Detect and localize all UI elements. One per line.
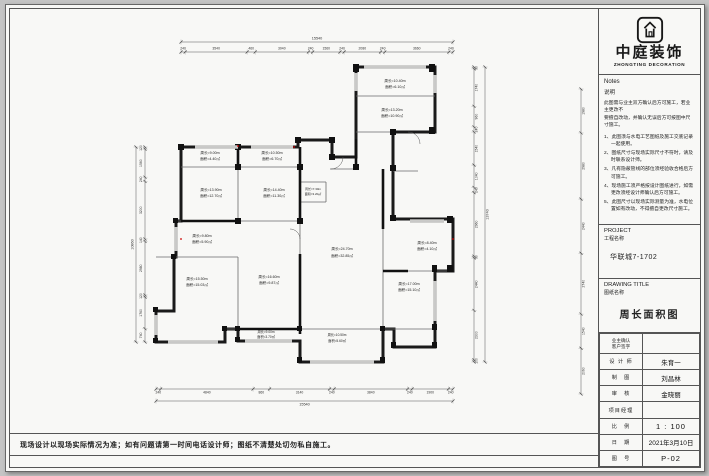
date-value: 2021年3月10日 (643, 434, 700, 450)
svg-text:3040: 3040 (278, 46, 286, 50)
drawing-sheet: 2403540460304024015602402080240366024015… (5, 4, 705, 472)
svg-text:2060: 2060 (581, 367, 585, 375)
svg-text:1560: 1560 (323, 46, 331, 50)
table-row: 项目经理 (600, 402, 700, 418)
svg-text:1900: 1900 (426, 391, 434, 395)
svg-text:3840: 3840 (367, 391, 375, 395)
project-section: PROJECT 工程名称 华联城7-1702 (599, 225, 700, 279)
svg-text:2960: 2960 (475, 220, 479, 228)
svg-text:120: 120 (139, 293, 143, 299)
sheet-number-label: 图 号 (600, 450, 643, 466)
room-label: 面积=15.03㎡ (186, 282, 208, 287)
svg-text:240: 240 (407, 391, 413, 395)
svg-text:120: 120 (139, 145, 143, 151)
room-label: 周长=7.30m (305, 186, 322, 191)
svg-text:240: 240 (475, 187, 479, 193)
room-label: 周长=9.00m (257, 329, 274, 334)
svg-text:1540: 1540 (581, 327, 585, 335)
scale-value: 1 : 100 (643, 418, 700, 434)
outer-walls (156, 67, 453, 362)
room-label: 面积=3.70㎡ (257, 334, 275, 339)
svg-text:3200: 3200 (139, 206, 143, 214)
room-label: 周长=8.40m (417, 240, 436, 245)
table-row: 审 核 金晓丽 (600, 386, 700, 402)
footer-note-text: 现场设计以现场实际情况为准；如有问题请第一时间电话设计师；图纸不清楚处切勿私自施… (20, 440, 335, 450)
floor-plan-area: 2403540460304024015602402080240366024015… (10, 9, 598, 467)
svg-text:960: 960 (475, 114, 479, 120)
project-manager-value (643, 402, 700, 418)
title-block-table: 业主确认 客户签字 设 计 师 朱育一 制 图 刘昌林 审 核 (599, 333, 700, 467)
designer-label: 设 计 师 (600, 354, 643, 370)
notes-intro-line: 此图需与业主双方确认后方可施工，若业主更改不 (604, 100, 695, 115)
note-item: 1、此图须与水电工艺图纸及施工交底记录一起使用。 (604, 134, 695, 149)
room-label: 面积=12.70㎡ (200, 193, 222, 198)
room-label: 面积=4.40㎡ (200, 156, 220, 161)
room-label: 面积=15.10㎡ (398, 287, 420, 292)
svg-text:10860: 10860 (130, 239, 134, 250)
scale-label: 比 例 (600, 418, 643, 434)
notes-intro: 此图需与业主双方确认后方可施工，若业主更改不 要擅自改动，并确认无误后方可按图中… (604, 100, 695, 130)
project-manager-label: 项目经理 (600, 402, 643, 418)
room-label: 面积=32.85㎡ (331, 253, 353, 258)
svg-text:13740: 13740 (486, 209, 490, 220)
room-label: 面积=10.90㎡ (381, 113, 403, 118)
table-row: 设 计 师 朱育一 (600, 354, 700, 370)
table-row: 日 期 2021年3月10日 (600, 434, 700, 450)
room-label: 周长=10.50m (328, 332, 347, 337)
project-label-en: PROJECT (604, 228, 695, 234)
note-item: 5、此图尺寸以现场实际测量为准，水电位置如有改动，不得擅自更改尺寸施工。 (604, 199, 695, 214)
room-label: 周长=9.80m (192, 233, 211, 238)
room-labels: 周长=10.40m 面积=6.10㎡ 周长=13.20m 面积=10.90㎡ 周… (186, 78, 437, 343)
notes-subtitle: 说明 (604, 89, 695, 98)
note-item: 3、凡有隐蔽管线的部位须经验收合格后方可施工。 (604, 166, 695, 181)
checker-label: 审 核 (600, 386, 643, 402)
table-row: 制 图 刘昌林 (600, 370, 700, 386)
project-name: 华联城7-1702 (604, 252, 695, 262)
floor-plan-svg: 2403540460304024015602402080240366024015… (10, 9, 596, 430)
svg-text:240: 240 (139, 176, 143, 182)
svg-text:2980: 2980 (581, 162, 585, 170)
client-sign-label: 客户签字 (602, 344, 640, 350)
title-block-column: 中庭装饰 ZHONGTING DECORATION Notes 说明 此图需与业… (598, 9, 700, 467)
room-label: 面积=6.70㎡ (262, 156, 282, 161)
room-label: 面积=9.87㎡ (259, 280, 279, 285)
svg-text:2740: 2740 (581, 280, 585, 288)
room-label: 周长=10.50m (261, 150, 282, 155)
brand-name-cn: 中庭装饰 (615, 45, 683, 62)
svg-text:3540: 3540 (212, 46, 220, 50)
svg-text:2980: 2980 (139, 264, 143, 272)
sheet-number-value: P-02 (643, 450, 700, 466)
room-label: 周长=13.90m (200, 187, 221, 192)
designer-name: 朱育一 (643, 354, 700, 370)
room-label: 周长=15.50m (186, 276, 207, 281)
svg-text:1980: 1980 (581, 107, 585, 115)
notes-intro-line: 要擅自改动，并确认无误后方可按图中尺寸施工。 (604, 115, 695, 130)
room-label: 面积=11.30㎡ (263, 193, 285, 198)
svg-text:4840: 4840 (203, 391, 211, 395)
svg-text:3140: 3140 (296, 391, 304, 395)
svg-text:240: 240 (155, 391, 161, 395)
svg-text:240: 240 (448, 391, 454, 395)
room-label: 周长=24.70m (331, 246, 352, 251)
table-row: 图 号 P-02 (600, 450, 700, 466)
svg-text:1040: 1040 (475, 172, 479, 180)
table-row: 比 例 1 : 100 (600, 418, 700, 434)
brand-name-en: ZHONGTING DECORATION (614, 62, 685, 67)
project-label-cn: 工程名称 (604, 235, 695, 242)
footer-note-strip: 现场设计以现场实际情况为准；如有问题请第一时间电话设计师；图纸不清楚处切勿私自施… (10, 433, 598, 456)
svg-text:2300: 2300 (475, 331, 479, 339)
drawing-label-en: DRAWING TITLE (604, 282, 695, 288)
note-item: 4、现场施工须严格按设计图纸进行，如需更改须经设计师确认后方可施工。 (604, 183, 695, 198)
heavy-walls (181, 139, 408, 334)
owner-confirm-value (643, 334, 700, 354)
svg-text:1540: 1540 (475, 145, 479, 153)
svg-text:90: 90 (475, 66, 479, 70)
drawing-title: 周长面积图 (604, 306, 695, 321)
company-logo-icon (636, 16, 664, 44)
svg-text:3660: 3660 (413, 46, 421, 50)
drawing-title-section: DRAWING TITLE 图纸名称 周长面积图 (599, 279, 700, 333)
svg-text:460: 460 (248, 46, 254, 50)
drafter-label: 制 图 (600, 370, 643, 386)
svg-text:1760: 1760 (139, 309, 143, 317)
table-row: 业主确认 客户签字 (600, 334, 700, 354)
svg-text:1560: 1560 (139, 159, 143, 167)
svg-text:90: 90 (475, 255, 479, 259)
room-label: 周长=16.60m (258, 274, 279, 279)
room-label: 周长=9.00m (200, 150, 219, 155)
room-label: 周长=13.20m (381, 107, 402, 112)
wall-piers (153, 64, 453, 363)
svg-text:2080: 2080 (359, 46, 367, 50)
svg-text:240: 240 (329, 391, 335, 395)
svg-text:740: 740 (139, 332, 143, 338)
room-label: 面积=5.90㎡ (192, 239, 212, 244)
note-item: 2、图纸尺寸与现场实际尺寸不符时，请及时联系设计师。 (604, 150, 695, 165)
company-logo-block: 中庭装饰 ZHONGTING DECORATION (599, 9, 700, 75)
drafter-name: 刘昌林 (643, 370, 700, 386)
svg-text:2440: 2440 (475, 280, 479, 288)
svg-text:860: 860 (258, 391, 264, 395)
svg-text:140: 140 (139, 237, 143, 243)
svg-text:1740: 1740 (475, 84, 479, 92)
sheet-inner-frame: 2403540460304024015602402080240366024015… (9, 8, 701, 468)
notes-title: Notes (604, 78, 695, 87)
date-label: 日 期 (600, 434, 643, 450)
page: 2403540460304024015602402080240366024015… (0, 0, 709, 476)
room-label: 面积=3.20㎡ (305, 191, 322, 196)
checker-name: 金晓丽 (643, 386, 700, 402)
drawing-label-cn: 图纸名称 (604, 289, 695, 296)
room-label: 面积=4.10㎡ (417, 246, 437, 251)
room-label: 面积=6.10㎡ (385, 84, 405, 89)
notes-section: Notes 说明 此图需与业主双方确认后方可施工，若业主更改不 要擅自改动，并确… (599, 75, 700, 225)
room-label: 周长=17.00m (398, 281, 419, 286)
svg-text:240: 240 (475, 127, 479, 133)
room-label: 面积=5.60㎡ (328, 338, 346, 343)
svg-text:15540: 15540 (312, 37, 323, 41)
room-label: 周长=14.40m (263, 187, 284, 192)
room-label: 周长=10.40m (384, 78, 405, 83)
svg-text:15540: 15540 (299, 403, 310, 407)
svg-text:2440: 2440 (581, 222, 585, 230)
